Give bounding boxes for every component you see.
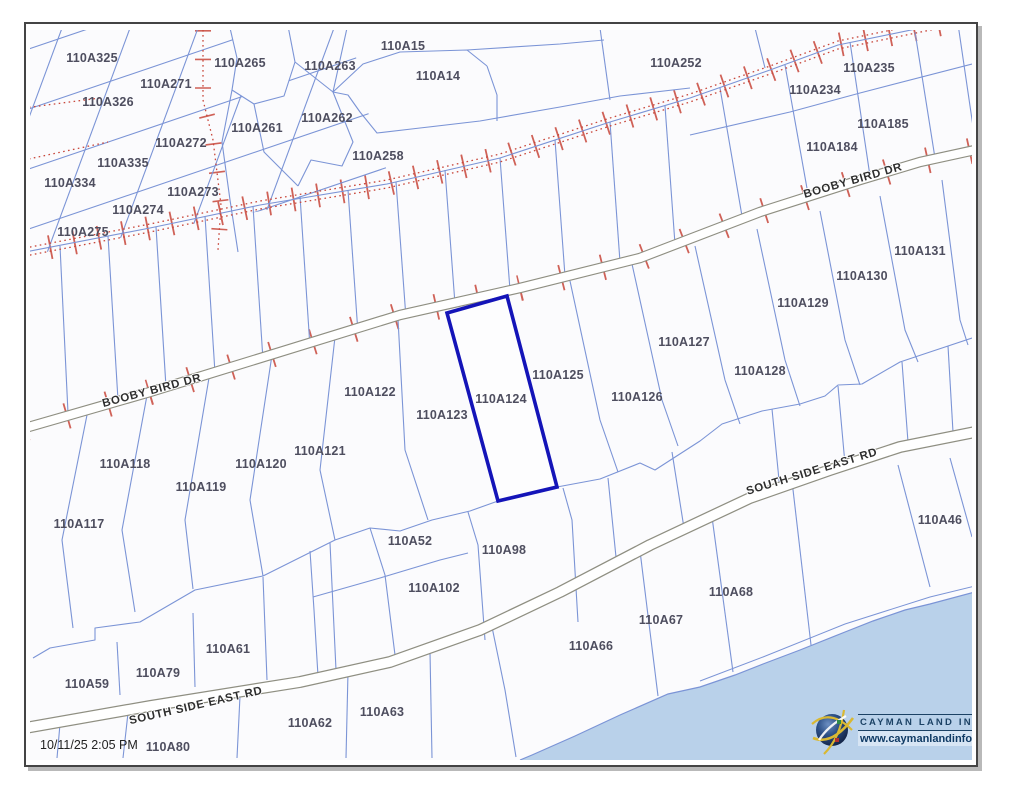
page: { "map": { "timestamp": "10/11/25 2:05 P… [0,0,1012,794]
brand-url[interactable]: www.caymanlandinfo.ky [858,731,972,746]
map-linework [30,30,972,760]
map-frame: 110A325110A265110A263110A271110A326110A2… [24,22,978,767]
map-canvas[interactable]: 110A325110A265110A263110A271110A326110A2… [30,30,972,760]
timestamp: 10/11/25 2:05 PM [40,738,138,752]
brand-name: CAYMAN LAND INFO [858,714,972,731]
globe-logo-icon [810,702,856,758]
brand-block[interactable]: CAYMAN LAND INFO www.caymanlandinfo.ky [812,702,970,758]
